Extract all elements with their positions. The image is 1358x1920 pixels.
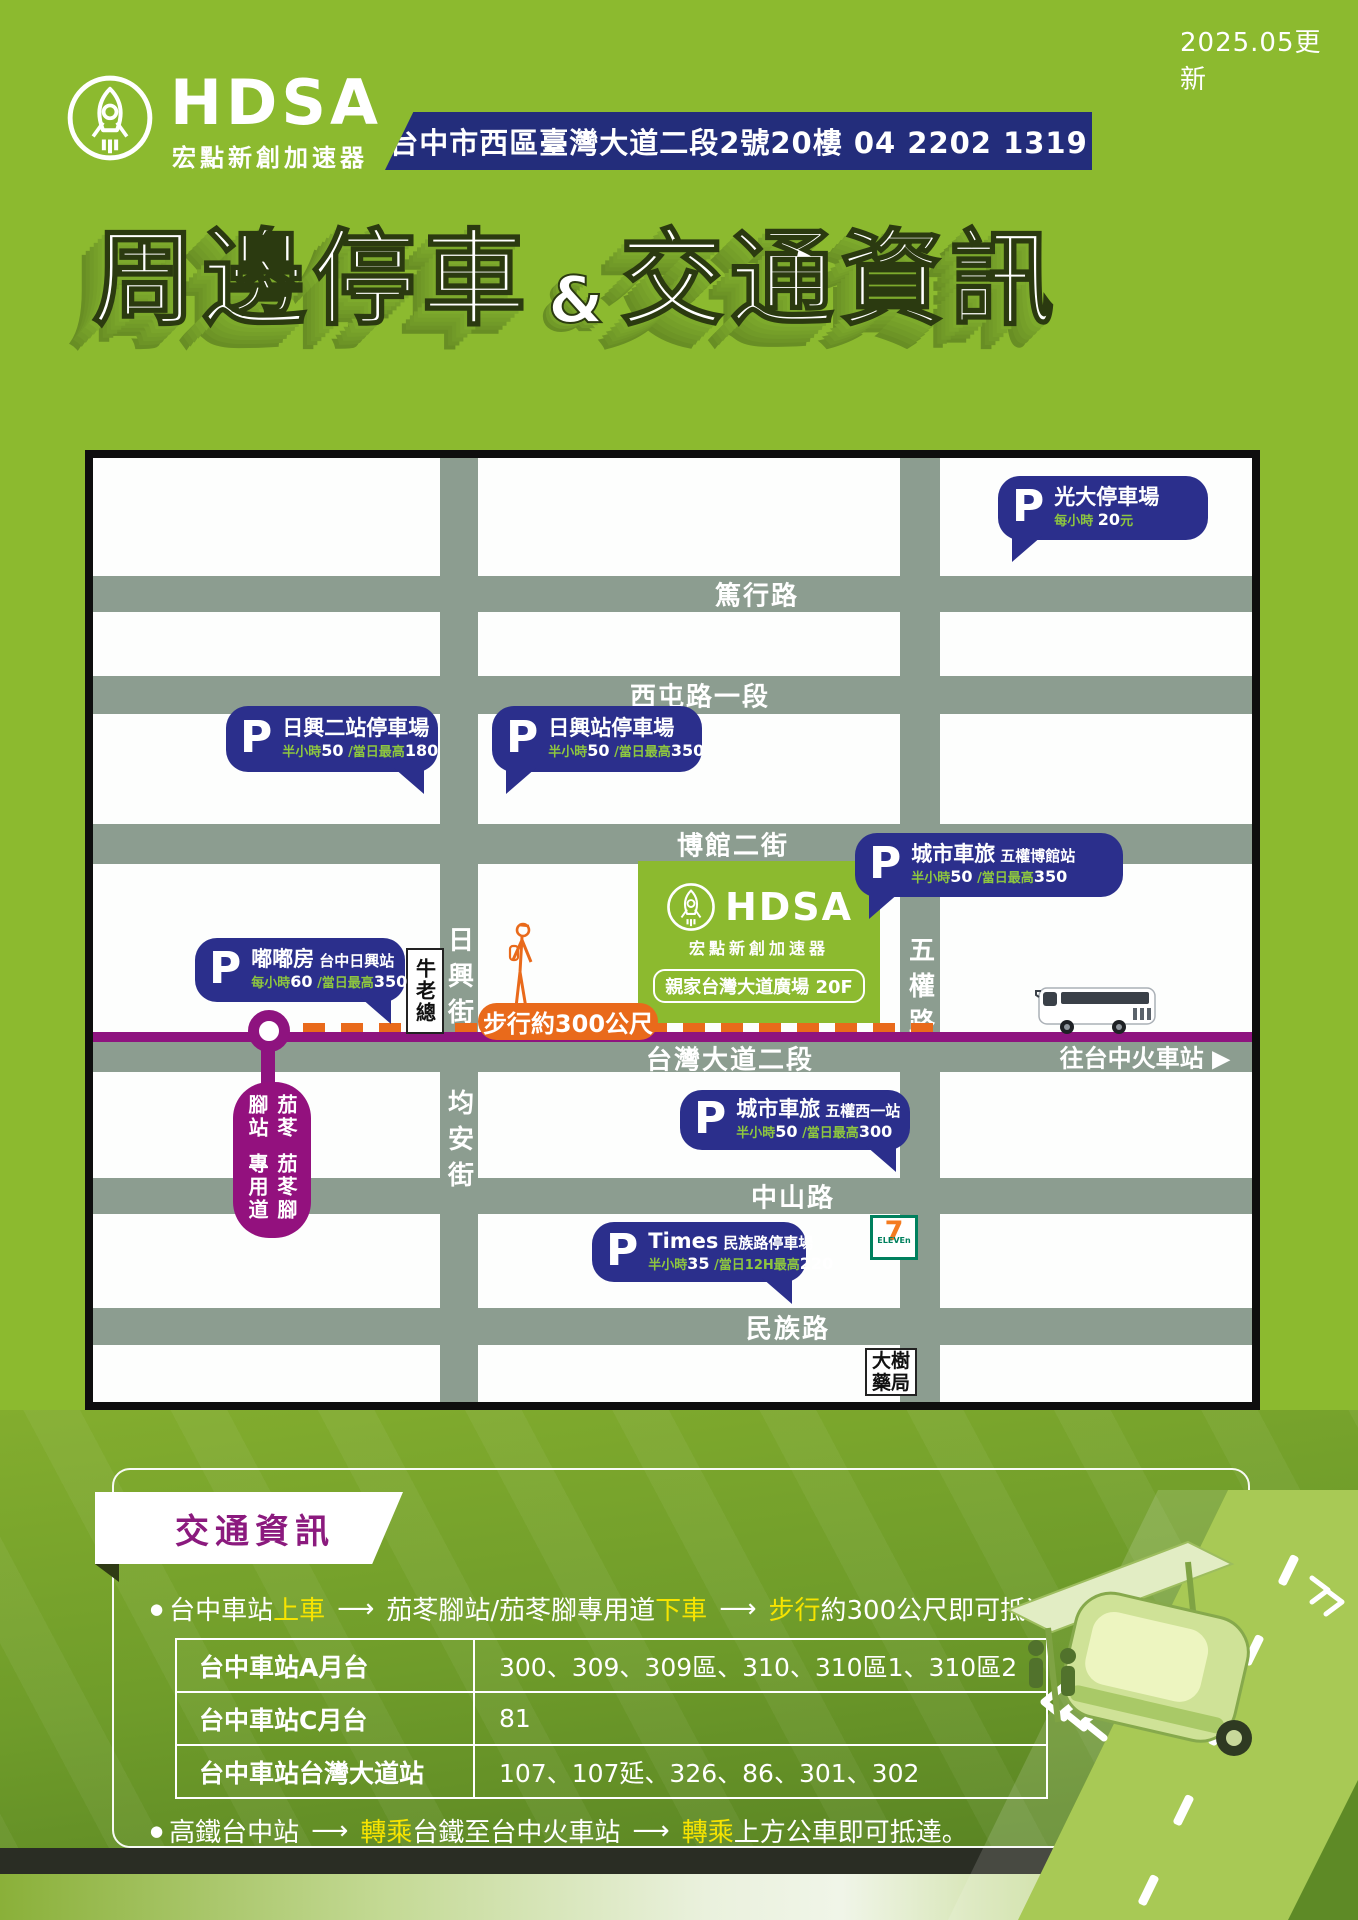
street-minzu bbox=[93, 1308, 1252, 1345]
bullet1-alight: 下車 bbox=[655, 1590, 707, 1627]
fee-label: 半小時 bbox=[282, 745, 321, 760]
walk-distance-label: 步行約300公尺 bbox=[478, 1003, 658, 1040]
parking-bubble-dudufang: P 嘟嘟房台中日興站 每小時60 /當日最高350 bbox=[195, 938, 405, 1002]
fee-label: 半小時 bbox=[736, 1126, 775, 1141]
fee-value: 50 bbox=[321, 741, 343, 760]
parking-fee: 每小時60 /當日最高350 bbox=[251, 972, 407, 991]
parking-bubble-guangda: P 光大停車場 每小時 20元 bbox=[998, 476, 1208, 540]
parking-name-sub: 台中日興站 bbox=[319, 952, 394, 970]
parking-fee: 半小時50 /當日最高180 bbox=[282, 741, 438, 760]
fee-label: 半小時 bbox=[548, 745, 587, 760]
parking-bubble-times: P Times民族路停車場 半小時35 /當日12H最高220 bbox=[592, 1222, 806, 1282]
direction-note: 往台中火車站 ▶ bbox=[1060, 1039, 1231, 1074]
parking-icon: P bbox=[869, 844, 901, 884]
fee-unit: 元 bbox=[1120, 514, 1133, 529]
street-label-duxing: 篤行路 bbox=[715, 576, 799, 613]
title-traffic: 交通資訊 bbox=[620, 222, 1060, 336]
landmark-niulaozong: 牛老總 bbox=[406, 948, 444, 1034]
bullet-dot: ● bbox=[150, 1822, 163, 1840]
parking-fee: 半小時35 /當日12H最高220 bbox=[648, 1254, 833, 1273]
street-duxing bbox=[93, 576, 1252, 612]
arrow-icon: ⟶ bbox=[311, 1816, 348, 1846]
traffic-bullet-2: ● 高鐵台中站⟶轉乘台鐵至台中火車站⟶轉乘上方公車即可抵達。 bbox=[150, 1812, 968, 1849]
brt-stop-name: 茄苳腳站 bbox=[243, 1094, 301, 1151]
parking-name: 嘟嘟房台中日興站 bbox=[251, 947, 407, 971]
parking-icon: P bbox=[606, 1231, 638, 1271]
bullet1-mid: 茄苳腳站/茄苳腳專用道 bbox=[386, 1590, 655, 1627]
parking-icon: P bbox=[1012, 487, 1044, 527]
shuttle-illustration bbox=[888, 1490, 1358, 1920]
bus-icon bbox=[1035, 985, 1159, 1035]
row-label: 台中車站C月台 bbox=[177, 1693, 473, 1744]
parking-name: Times民族路停車場 bbox=[648, 1229, 833, 1253]
bullet2-transfer1: 轉乘 bbox=[360, 1812, 412, 1849]
poster: 2025.05更新 HDSA 宏點新創加速器 台中市西區臺灣大道二段2號20樓 … bbox=[0, 0, 1358, 1920]
parking-bubble-city-wuquan: P 城市車旅五權西一站 半小時50 /當日最高300 bbox=[680, 1090, 910, 1150]
fee-value: 50 bbox=[950, 867, 972, 886]
brand-subtitle: 宏點新創加速器 bbox=[172, 138, 368, 173]
parking-name: 日興二站停車場 bbox=[282, 716, 438, 740]
hdsa-building: HDSA 宏點新創加速器 親家台灣大道廣場 20F bbox=[638, 861, 880, 1023]
right-triangle-icon: ▶ bbox=[1212, 1045, 1230, 1073]
street-label-minzu: 民族路 bbox=[746, 1309, 830, 1346]
fee-label2: /當日最高 bbox=[317, 976, 374, 991]
rocket-icon bbox=[665, 881, 717, 933]
area-map: 篤行路 西屯路一段 博館二街 台灣大道二段 中山路 民族路 日興街 均安街 五權… bbox=[85, 450, 1260, 1410]
parking-name-sub: 民族路停車場 bbox=[723, 1234, 813, 1252]
fee-label: 半小時 bbox=[648, 1258, 687, 1273]
street-label-junan: 均安街 bbox=[441, 1089, 478, 1197]
bullet1-pre: 台中車站 bbox=[169, 1590, 273, 1627]
fee-label2: /當日最高 bbox=[977, 871, 1034, 886]
fee-value2: 300 bbox=[859, 1122, 892, 1141]
parking-name-main: 嘟嘟房 bbox=[251, 947, 314, 971]
fee-label: 每小時 bbox=[1054, 514, 1093, 529]
arrow-icon: ⟶ bbox=[337, 1594, 374, 1624]
brt-lane-name: 茄苳腳專用道 bbox=[243, 1153, 301, 1238]
fee-value2: 220 bbox=[800, 1254, 833, 1273]
parking-fee: 半小時50 /當日最高300 bbox=[736, 1122, 900, 1141]
page-title: 周邊停車 & 交通資訊 bbox=[92, 222, 1272, 336]
street-label-rixing: 日興街 bbox=[441, 926, 478, 1034]
update-date: 2025.05更新 bbox=[1180, 22, 1340, 96]
fee-value2: 350 bbox=[374, 972, 407, 991]
dashu-line1: 大樹 bbox=[872, 1350, 910, 1372]
fee-value: 20 bbox=[1098, 510, 1120, 529]
street-wuquan bbox=[900, 458, 940, 1402]
direction-text: 往台中火車站 bbox=[1060, 1045, 1204, 1073]
building-brand: HDSA bbox=[725, 885, 853, 929]
eleven-glyph: ELEVEn bbox=[873, 1237, 915, 1245]
building-brand-sub: 宏點新創加速器 bbox=[689, 935, 829, 959]
parking-name-main: Times bbox=[648, 1229, 718, 1253]
parking-name-sub: 五權博館站 bbox=[1000, 847, 1075, 865]
parking-name-main: 城市車旅 bbox=[736, 1097, 820, 1121]
row-label: 台中車站A月台 bbox=[177, 1640, 473, 1691]
fee-label: 每小時 bbox=[251, 976, 290, 991]
fee-value: 60 bbox=[290, 972, 312, 991]
brand-wordmark: HDSA bbox=[170, 72, 382, 134]
bullet1-walk: 步行 bbox=[768, 1590, 820, 1627]
title-parking: 周邊停車 bbox=[92, 222, 532, 336]
bullet2-mid: 台鐵至台中火車站 bbox=[412, 1812, 620, 1849]
parking-name: 城市車旅五權西一站 bbox=[736, 1097, 900, 1121]
parking-bubble-rixing2: P 日興二站停車場 半小時50 /當日最高180 bbox=[226, 706, 438, 772]
building-address-chip: 親家台灣大道廣場 20F bbox=[653, 969, 865, 1003]
traffic-section-title: 交通資訊 bbox=[95, 1504, 335, 1553]
traffic-section-ribbon: 交通資訊 bbox=[95, 1492, 403, 1564]
bullet1-board: 上車 bbox=[273, 1590, 325, 1627]
rocket-icon bbox=[64, 72, 156, 164]
parking-bubble-rixing: P 日興站停車場 半小時50 /當日最高350 bbox=[492, 706, 702, 772]
address-banner: 台中市西區臺灣大道二段2號20樓 04 2202 1319 bbox=[385, 112, 1092, 170]
parking-name: 日興站停車場 bbox=[548, 716, 704, 740]
parking-fee: 半小時50 /當日最高350 bbox=[911, 867, 1075, 886]
parking-name-sub: 五權西一站 bbox=[825, 1102, 900, 1120]
arrow-icon: ⟶ bbox=[632, 1816, 669, 1846]
bullet-dot: ● bbox=[150, 1600, 163, 1618]
parking-icon: P bbox=[209, 949, 241, 989]
row-label: 台中車站台灣大道站 bbox=[177, 1746, 473, 1797]
bullet2-pre: 高鐵台中站 bbox=[169, 1812, 299, 1849]
parking-bubble-city-boguan: P 城市車旅五權博館站 半小時50 /當日最高350 bbox=[855, 833, 1123, 897]
address-text: 台中市西區臺灣大道二段2號20樓 04 2202 1319 bbox=[389, 120, 1088, 162]
arrow-icon: ⟶ bbox=[719, 1594, 756, 1624]
fee-label2: /當日最高 bbox=[802, 1126, 859, 1141]
street-label-zhongshan: 中山路 bbox=[751, 1178, 835, 1215]
fee-label2: /當日最高 bbox=[614, 745, 671, 760]
fee-label2: /當日12H最高 bbox=[714, 1258, 800, 1273]
parking-icon: P bbox=[694, 1099, 726, 1139]
parking-name-main: 城市車旅 bbox=[911, 842, 995, 866]
fee-value2: 350 bbox=[671, 741, 704, 760]
seven-eleven-icon: 7 ELEVEn bbox=[870, 1215, 918, 1260]
brt-station-node bbox=[248, 1010, 290, 1052]
landmark-dashu-pharmacy: 大樹 藥局 bbox=[865, 1348, 917, 1396]
fee-value2: 180 bbox=[405, 741, 438, 760]
parking-icon: P bbox=[240, 718, 272, 758]
fee-value: 50 bbox=[775, 1122, 797, 1141]
street-label-taiwan-blvd: 台灣大道二段 bbox=[646, 1040, 814, 1077]
fee-label2: /當日最高 bbox=[348, 745, 405, 760]
parking-name: 光大停車場 bbox=[1054, 485, 1159, 509]
fee-value2: 350 bbox=[1034, 867, 1067, 886]
title-ampersand: & bbox=[548, 264, 604, 338]
parking-fee: 半小時50 /當日最高350 bbox=[548, 741, 704, 760]
parking-icon: P bbox=[506, 718, 538, 758]
fee-value: 35 bbox=[687, 1254, 709, 1273]
parking-name: 城市車旅五權博館站 bbox=[911, 842, 1075, 866]
fee-value: 50 bbox=[587, 741, 609, 760]
brt-stop-label: 茄苳腳站 茄苳腳專用道 bbox=[233, 1082, 311, 1238]
brt-station-stem bbox=[261, 1050, 275, 1086]
bullet2-transfer2: 轉乘 bbox=[682, 1812, 734, 1849]
parking-fee: 每小時 20元 bbox=[1054, 510, 1159, 529]
street-label-boguan: 博館二街 bbox=[677, 826, 789, 863]
dashu-line2: 藥局 bbox=[872, 1372, 910, 1394]
fee-label: 半小時 bbox=[911, 871, 950, 886]
